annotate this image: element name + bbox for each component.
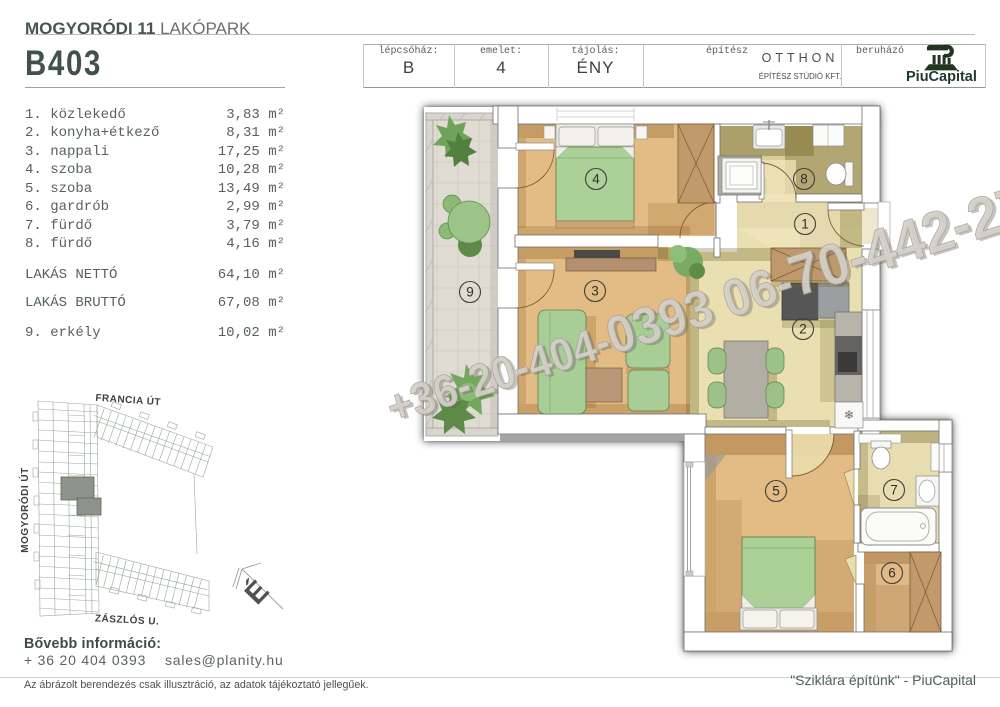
svg-text:3: 3: [591, 284, 599, 299]
svg-text:9: 9: [466, 285, 474, 300]
svg-text:2: 2: [799, 322, 807, 337]
svg-text:6: 6: [888, 566, 896, 581]
svg-text:4: 4: [592, 172, 600, 187]
svg-text:5: 5: [772, 484, 780, 499]
svg-text:FRANCIA ÚT: FRANCIA ÚT: [95, 391, 161, 409]
svg-text:1: 1: [801, 217, 809, 232]
svg-text:7: 7: [890, 483, 898, 498]
svg-text:8: 8: [800, 172, 808, 187]
svg-text:❄: ❄: [844, 408, 854, 422]
svg-text:MOGYORÓDI ÚT: MOGYORÓDI ÚT: [18, 467, 31, 552]
svg-text:É: É: [238, 573, 276, 611]
svg-text:ZÁSZLÓS U.: ZÁSZLÓS U.: [95, 611, 160, 627]
